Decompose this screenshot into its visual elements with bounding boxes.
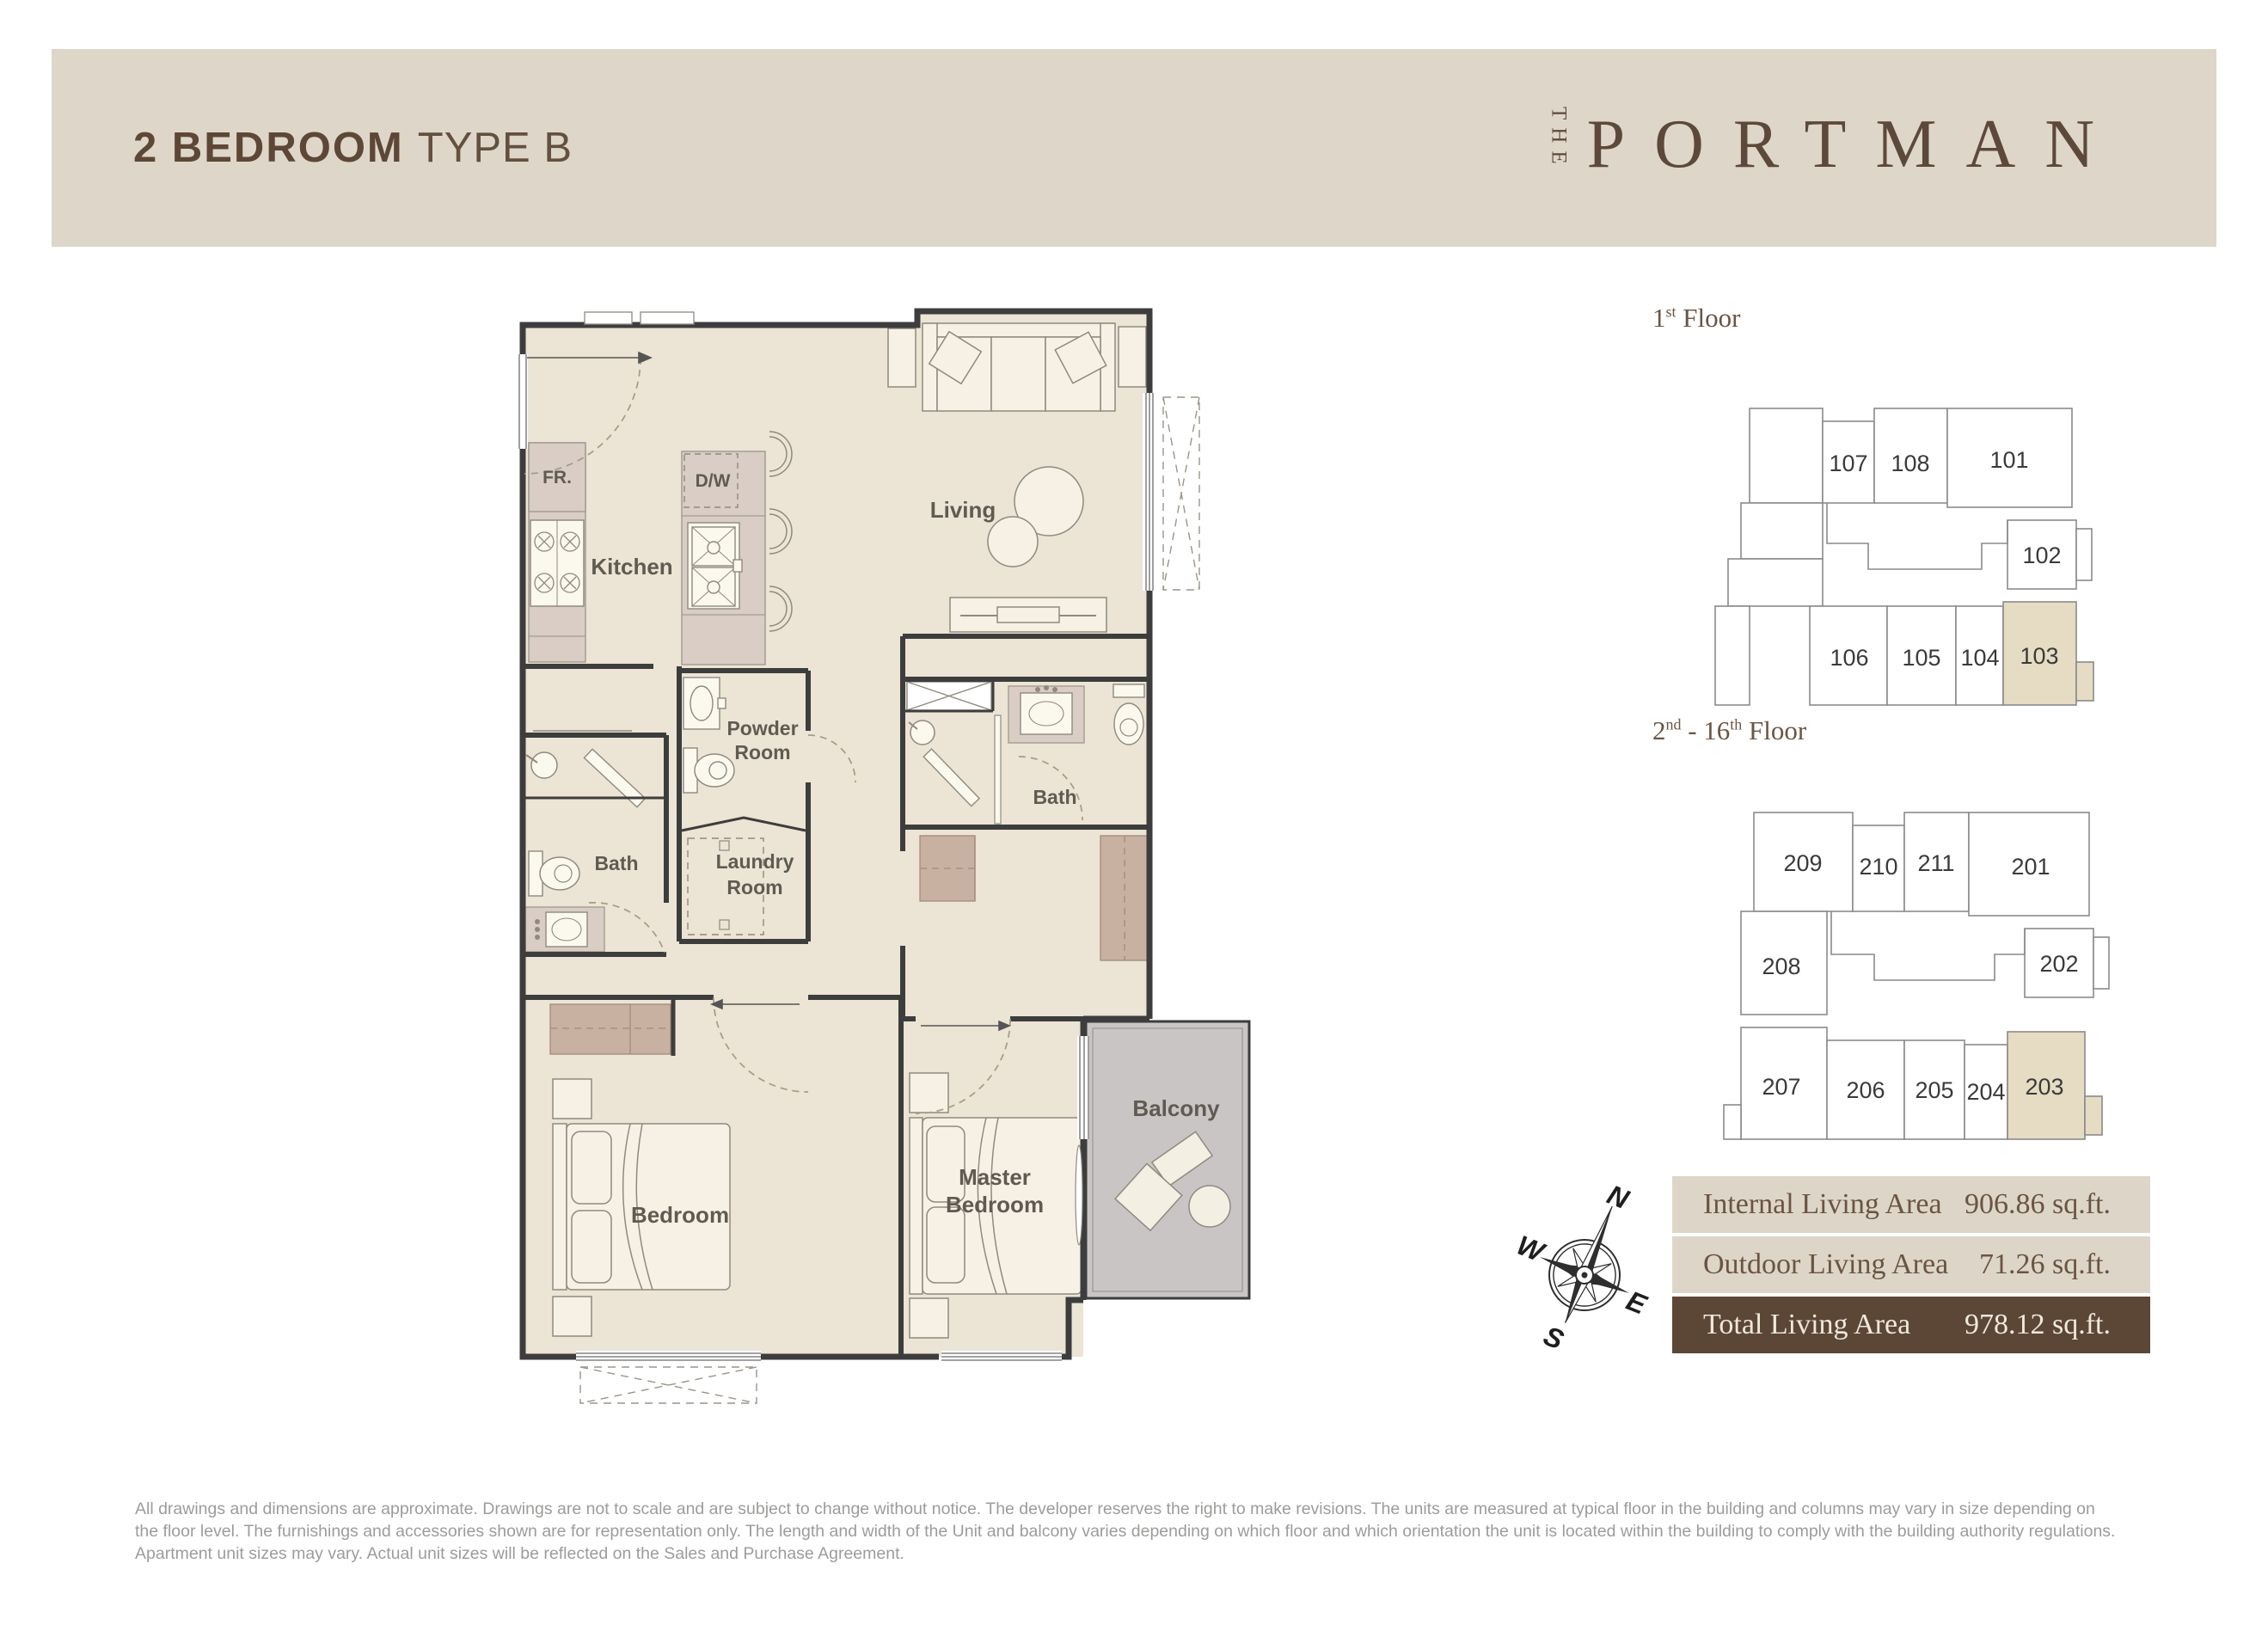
compass-s: S xyxy=(1539,1320,1568,1356)
row-label: Internal Living Area xyxy=(1703,1188,1942,1221)
page-title-light: TYPE B xyxy=(418,125,573,171)
header-bar: 2 BEDROOMTYPE B THE PORTMAN xyxy=(52,49,2216,247)
exterior-niche xyxy=(1163,397,1199,590)
kp2-num-203: 203 xyxy=(2025,1074,2063,1100)
floorplan-page: 2 BEDROOMTYPE B THE PORTMAN xyxy=(0,0,2268,1625)
row-value: 906.86 sq.ft. xyxy=(1965,1188,2111,1221)
label-bath-left: Bath xyxy=(594,852,638,874)
label-powder-2: Room xyxy=(734,741,790,763)
toilet-bowl-icon xyxy=(1114,703,1143,745)
label-kitchen: Kitchen xyxy=(591,554,672,579)
disclaimer-text: All drawings and dimensions are approxim… xyxy=(135,1498,2123,1565)
kp1-block xyxy=(1750,408,1823,503)
sofa-icon xyxy=(888,323,1146,411)
area-table: Internal Living Area 906.86 sq.ft. Outdo… xyxy=(1672,1176,2150,1353)
label-bedroom: Bedroom xyxy=(631,1202,729,1228)
kp1-num-108: 108 xyxy=(1891,451,1929,476)
kp2-num-211: 211 xyxy=(1917,850,1954,876)
key-plan-2-title: 2nd - 16th Floor xyxy=(1652,715,1806,746)
tv-console-icon xyxy=(950,598,1106,632)
label-bath-right: Bath xyxy=(1033,786,1076,808)
compass-e: E xyxy=(1622,1285,1652,1321)
toilet-tank xyxy=(1113,684,1144,697)
key-plan-1-title: 1st Floor xyxy=(1652,303,1740,334)
kp2-num-210: 210 xyxy=(1859,854,1897,880)
page-title-bold: 2 BEDROOM xyxy=(133,125,404,171)
table-row-total: Total Living Area 978.12 sq.ft. xyxy=(1672,1297,2150,1353)
kp2-num-204: 204 xyxy=(1966,1079,2005,1105)
kp1-num-105: 105 xyxy=(1902,645,1940,671)
linen-closet-icon xyxy=(907,682,991,710)
key-plan-2nd-16th-floor: 209 210 211 201 202 208 207 206 205 204 … xyxy=(1689,778,2154,1182)
brand-logo: THE PORTMAN xyxy=(1548,107,2124,189)
key-plan-1st-floor: 107 108 101 102 103 104 105 106 xyxy=(1698,361,2136,739)
kp1-num-102: 102 xyxy=(2022,543,2061,568)
row-value: 71.26 sq.ft. xyxy=(1979,1248,2111,1281)
kp2-num-202: 202 xyxy=(2039,951,2078,977)
label-fr: FR. xyxy=(542,468,572,487)
kp2-num-205: 205 xyxy=(1915,1077,1953,1103)
compass-w: W xyxy=(1512,1229,1550,1269)
powder-sink-icon xyxy=(683,678,726,729)
shower-head-icon xyxy=(910,721,935,745)
brand-logo-the: THE xyxy=(1548,107,1570,189)
label-laundry-2: Room xyxy=(726,876,782,898)
label-master-1: Master xyxy=(959,1164,1031,1190)
kp1-num-101: 101 xyxy=(1989,447,2028,473)
stove-icon xyxy=(530,520,584,606)
label-powder-1: Powder xyxy=(726,717,798,739)
kp1-num-103: 103 xyxy=(2020,643,2058,669)
row-label: Outdoor Living Area xyxy=(1703,1248,1948,1281)
compass-n: N xyxy=(1603,1185,1634,1215)
label-living: Living xyxy=(930,497,996,523)
row-label: Total Living Area xyxy=(1703,1309,1910,1341)
kp2-num-208: 208 xyxy=(1762,954,1800,979)
shower-head-icon xyxy=(531,752,557,778)
kp1-num-107: 107 xyxy=(1829,451,1867,476)
unit-floorplan-drawing: FR. D/W Kitchen Living Powder Room Bath … xyxy=(512,301,1260,1419)
table-row-internal: Internal Living Area 906.86 sq.ft. xyxy=(1672,1176,2150,1233)
vanity-sink-icon xyxy=(1021,693,1072,734)
label-master-2: Bedroom xyxy=(946,1192,1044,1217)
kitchen-sink-icon xyxy=(688,523,742,609)
brand-logo-name: PORTMAN xyxy=(1587,110,2124,179)
toilet-bowl-icon xyxy=(540,857,579,890)
kp2-num-201: 201 xyxy=(2011,854,2050,880)
kp2-num-206: 206 xyxy=(1846,1077,1885,1103)
label-laundry-1: Laundry xyxy=(716,850,794,873)
compass-icon: N E S W xyxy=(1503,1185,1666,1365)
label-balcony: Balcony xyxy=(1132,1095,1220,1121)
page-title: 2 BEDROOMTYPE B xyxy=(133,124,573,172)
kp2-num-207: 207 xyxy=(1762,1074,1800,1100)
table-row-outdoor: Outdoor Living Area 71.26 sq.ft. xyxy=(1672,1236,2150,1293)
kp1-num-106: 106 xyxy=(1830,645,1868,671)
kp1-num-104: 104 xyxy=(1960,645,1999,671)
row-value: 978.12 sq.ft. xyxy=(1965,1309,2111,1341)
kp2-num-209: 209 xyxy=(1783,850,1822,876)
label-dw: D/W xyxy=(696,471,731,491)
